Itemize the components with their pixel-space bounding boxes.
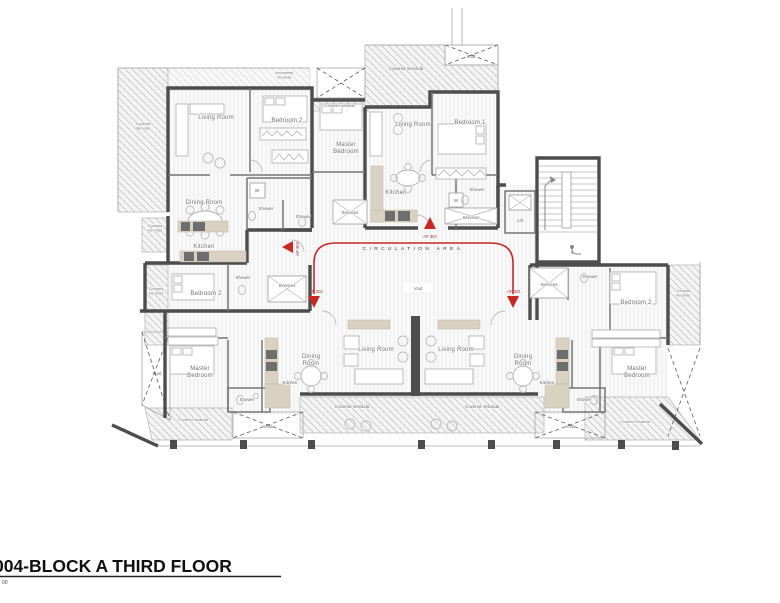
label-void-top: Void — [467, 54, 476, 59]
label-shower-1: Shower — [259, 206, 274, 211]
label-living-room-4: Living Room — [438, 347, 474, 353]
label-covered-veranda-bottom-left: Covered Veranda — [178, 418, 208, 422]
sheet-title: 004-BLOCK A THIRD FLOOR — [0, 556, 232, 576]
label-covered-veranda-small: Covered Veranda — [325, 104, 355, 108]
sheet-scale: 00 — [2, 580, 8, 586]
label-covered-veranda-left: CoveredVeranda — [136, 122, 151, 130]
label-covered-veranda-bottom-right: Covered Veranda — [620, 420, 650, 424]
label-master-bedroom-1: MasterBedroom — [333, 142, 359, 155]
label-bedroom-1: Bedroom 1 — [454, 120, 486, 126]
label-bedroom2-a: Bedroom 2 — [271, 118, 303, 124]
label-kitchen-4: Kitchen — [540, 380, 555, 385]
label-services-2: Services — [463, 215, 481, 220]
label-ap303: AP 303 — [295, 242, 300, 256]
label-covered-veranda-left-mid: CoveredVeranda — [148, 224, 163, 232]
label-kitchen-2: Kitchen — [385, 190, 406, 196]
label-shower-3: Shower — [470, 187, 485, 192]
floor-plan-sheet: CoveredVeranda UncoveredVeranda Covered … — [0, 0, 780, 603]
label-services-3: Services — [279, 283, 297, 288]
label-shower-7: Shower — [583, 274, 598, 279]
label-shower-4: Shower — [236, 275, 251, 280]
floor-plan-drawing: CoveredVeranda UncoveredVeranda Covered … — [0, 0, 780, 603]
label-covered-veranda-right-strip: CoveredVeranda — [676, 289, 691, 297]
label-living-room-1: Living Room — [198, 115, 234, 121]
label-shower-2: Shower — [296, 214, 311, 219]
label-covered-veranda-left-strip: CoveredVeranda — [149, 287, 164, 295]
label-lift: Lift — [517, 218, 524, 223]
label-void-left: Void — [153, 371, 162, 376]
label-covered-veranda-mid: Covered Veranda — [389, 66, 424, 71]
title-block: 004-BLOCK A THIRD FLOOR 00 — [0, 556, 281, 586]
label-master-bedroom-2: MasterBedroom — [187, 366, 213, 379]
label-void-bottom-left: Void — [264, 424, 273, 429]
label-ap302: AP 302 — [309, 289, 323, 294]
label-bedroom2-b: Bedroom 2 — [190, 291, 222, 297]
label-shower-5: Shower — [240, 397, 255, 402]
label-void-bottom-right: Void — [566, 424, 575, 429]
label-circulation-area: CIRCULATION AREA — [363, 246, 464, 252]
label-dining-room-2: DiningRoom — [302, 354, 320, 367]
label-covered-veranda-bc-left: Covered Veranda — [335, 404, 370, 409]
label-void-center: Void — [414, 286, 423, 291]
label-covered-veranda-bc-right: Covered Veranda — [465, 404, 500, 409]
label-dining-room-1: Dining Room — [186, 200, 223, 206]
label-master-bedroom-3: MasterBedroom — [624, 366, 650, 379]
label-uncovered-veranda: UncoveredVeranda — [275, 71, 293, 79]
label-shower-6: Shower — [577, 397, 592, 402]
label-living-room-2: Living Room — [395, 122, 431, 128]
label-bedroom2-c: Bedroom 2 — [620, 300, 652, 306]
label-dining-room-3: DiningRoom — [514, 354, 532, 367]
label-ap304: AP 304 — [423, 234, 437, 239]
label-kitchen-1: Kitchen — [193, 244, 214, 250]
label-services-4: Services — [541, 282, 559, 287]
label-living-room-3: Living Room — [358, 347, 394, 353]
label-services-1: Services — [342, 210, 360, 215]
label-kitchen-3: Kitchen — [283, 380, 298, 385]
label-ap301: AP 301 — [507, 289, 521, 294]
